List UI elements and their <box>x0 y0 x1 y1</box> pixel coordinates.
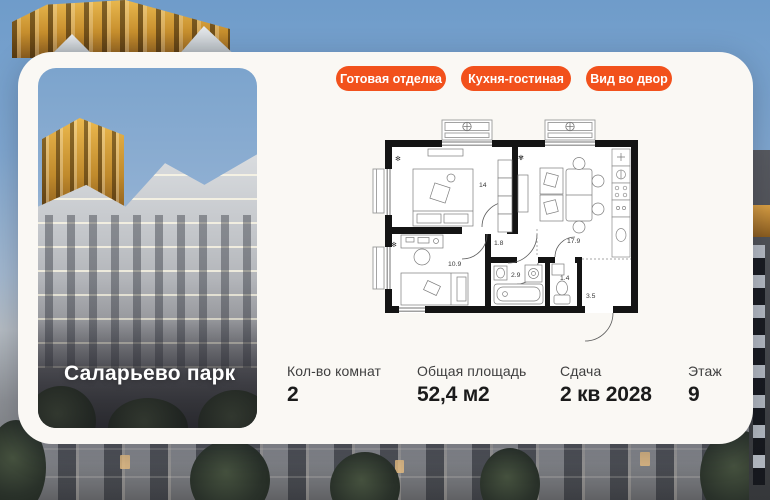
photo-shade-overlay <box>38 278 257 428</box>
project-name: Саларьево парк <box>64 362 235 386</box>
project-photo: Саларьево парк <box>38 68 257 428</box>
fan-icon <box>463 122 471 130</box>
room-label: 2.9 <box>511 272 521 279</box>
room-label: 14 <box>479 182 487 189</box>
detail-label: Этаж <box>688 363 722 379</box>
exterior-window-box <box>373 169 384 289</box>
tag-finishing[interactable]: Готовая отделка <box>336 66 446 91</box>
floor-plan: ✻ ✾ <box>371 117 638 345</box>
room-label: 1.4 <box>560 275 570 282</box>
floor-plan-svg: ✻ ✾ <box>371 117 638 345</box>
plant-icon: ✾ <box>518 154 524 162</box>
plant-icon: ✻ <box>391 241 397 249</box>
detail-total-area: Общая площадь 52,4 м2 <box>417 363 526 407</box>
lit-window <box>640 452 650 466</box>
room-label: 1.8 <box>494 240 504 247</box>
detail-value: 2 <box>287 383 381 407</box>
detail-value: 9 <box>688 383 722 407</box>
lit-window <box>120 455 130 469</box>
kitchen-counter <box>612 149 630 257</box>
detail-label: Общая площадь <box>417 363 526 379</box>
room-label: 3.5 <box>586 293 596 300</box>
detail-value: 2 кв 2028 <box>560 383 652 407</box>
apartment-listing-card[interactable]: Саларьево парк Готовая отделка Кухня-гос… <box>18 52 753 444</box>
detail-rooms: Кол-во комнат 2 <box>287 363 381 407</box>
detail-label: Кол-во комнат <box>287 363 381 379</box>
detail-delivery: Сдача 2 кв 2028 <box>560 363 652 407</box>
tag-kitchen-living[interactable]: Кухня-гостиная <box>461 66 571 91</box>
detail-label: Сдача <box>560 363 652 379</box>
detail-value: 52,4 м2 <box>417 383 526 407</box>
room-label: 17.9 <box>567 238 580 245</box>
plant-icon: ✻ <box>395 155 401 163</box>
detail-floor: Этаж 9 <box>688 363 722 407</box>
screenshot-stage: Саларьево парк Готовая отделка Кухня-гос… <box>0 0 770 500</box>
background-right-building-windows <box>753 245 765 485</box>
fan-icon <box>566 122 574 130</box>
room-label: 10.9 <box>448 261 461 268</box>
tag-courtyard-view[interactable]: Вид во двор <box>586 66 672 91</box>
